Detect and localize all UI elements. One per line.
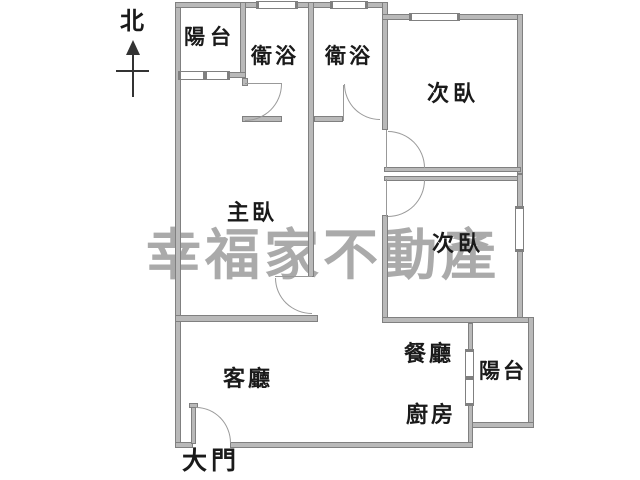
compass-north-label: 北 — [120, 8, 144, 34]
wall-bedroom-right-right-upper — [517, 174, 523, 210]
window-mid-tick — [465, 376, 474, 380]
wall-right-outer-upper — [517, 14, 523, 174]
bedroom-top-door-arc — [388, 131, 425, 168]
room-label-main-entrance: 大門 — [182, 447, 240, 475]
wall-bedroom-right-right-lower — [517, 250, 523, 323]
wall-bedroom-right-left — [382, 215, 388, 323]
wall-bottom-main — [230, 442, 473, 448]
bedroom-top-door-leaf — [386, 130, 387, 168]
wall-balcony-top-divider — [240, 2, 246, 78]
wall-balcony-right-outer — [528, 317, 534, 428]
north-arrow-head-icon — [126, 40, 140, 55]
main-entrance-door-arc — [196, 407, 231, 443]
room-label-bedroom-right: 次臥 — [432, 233, 484, 257]
wall-bathroom2-bedroom-divider — [382, 2, 388, 130]
wall-left-outer — [175, 2, 181, 448]
room-label-balcony-top: 陽台 — [184, 26, 236, 49]
wall-master-bottom — [175, 315, 318, 322]
room-label-bathroom-2: 衛浴 — [325, 45, 373, 68]
window-kitchen-balcony — [465, 349, 474, 406]
room-label-kitchen: 廚房 — [406, 404, 456, 428]
room-label-bedroom-top-right: 次臥 — [427, 83, 479, 107]
wall-balcony-right-bottom — [470, 422, 534, 428]
window-bedroom-top-right — [409, 13, 460, 21]
floor-plan: 幸福家不動產 北 陽台 衛浴 — [0, 0, 640, 480]
room-label-master-bedroom: 主臥 — [227, 202, 277, 226]
north-arrow-shaft — [132, 54, 134, 97]
wall-bedroom-right-bottom — [382, 317, 534, 323]
master-door-leaf — [275, 276, 312, 277]
bathroom2-door-arc — [344, 84, 380, 120]
room-label-living-room: 客廳 — [223, 368, 273, 392]
master-door-arc — [275, 278, 312, 314]
wall-kitchen-balcony-stub — [468, 323, 473, 351]
wall-bathroom2-bottom — [314, 116, 343, 122]
window-top-bathroom1 — [256, 1, 298, 9]
window-bedroom-right — [515, 206, 524, 252]
wall-bathroom-hall-divider — [308, 2, 314, 277]
room-label-balcony-right: 陽台 — [479, 360, 527, 383]
room-label-bathroom-1: 衛浴 — [251, 45, 299, 68]
room-label-dining-room: 餐廳 — [404, 343, 454, 367]
balcony-sliding-door — [178, 71, 230, 80]
sliding-door-mid-tick — [203, 71, 207, 80]
north-arrow-crossbar — [116, 70, 149, 72]
window-top-bathroom2 — [330, 1, 368, 9]
bedroom-right-door-leaf — [386, 179, 387, 217]
